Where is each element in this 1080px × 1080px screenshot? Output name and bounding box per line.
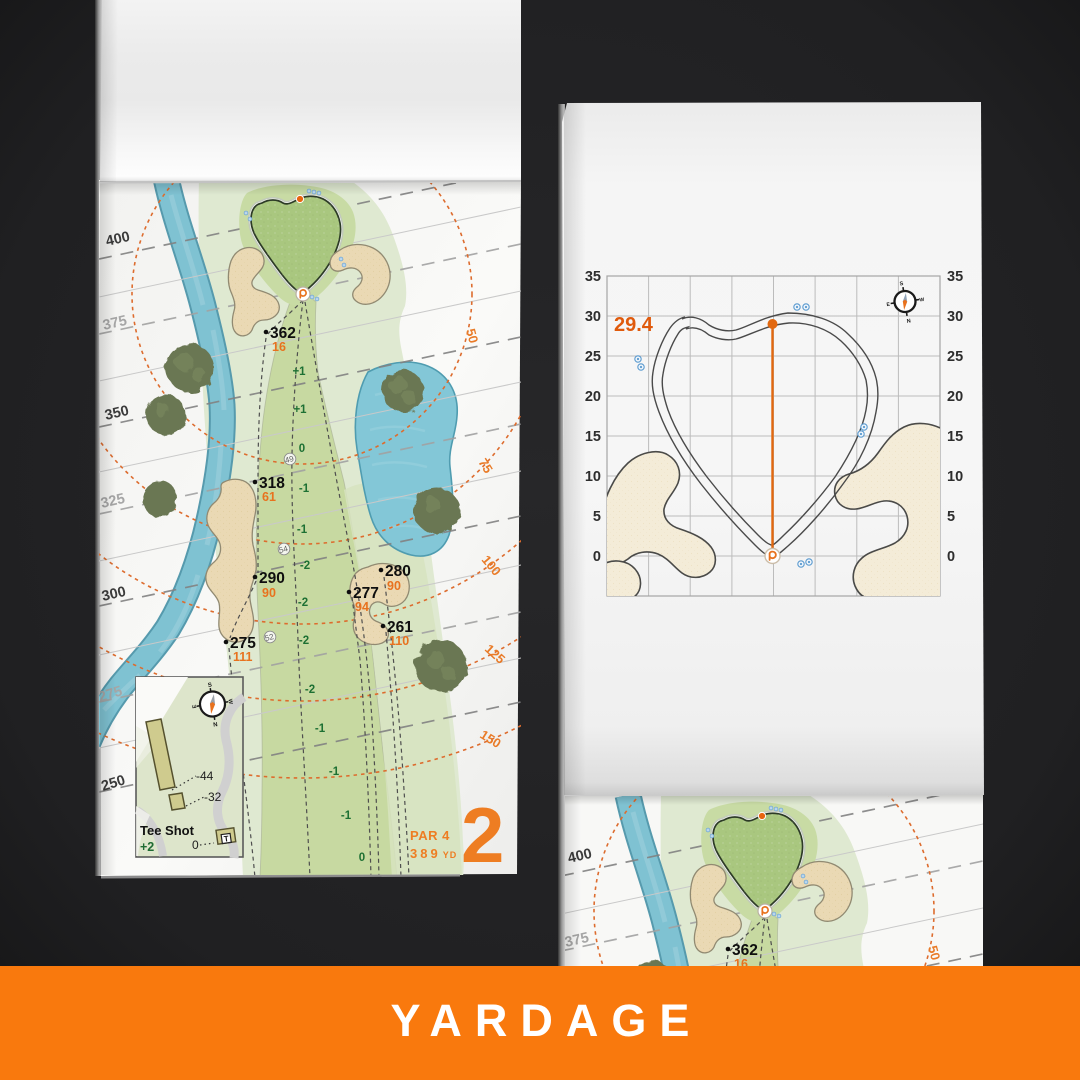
svg-text:25: 25: [947, 349, 963, 365]
svg-text:10: 10: [585, 469, 601, 485]
svg-text:25: 25: [585, 349, 601, 365]
svg-text:35: 35: [585, 269, 601, 285]
svg-text:N: N: [906, 318, 911, 324]
svg-text:0: 0: [593, 549, 601, 565]
svg-text:29.4: 29.4: [614, 314, 654, 336]
svg-text:15: 15: [585, 429, 601, 445]
svg-text:5: 5: [947, 509, 955, 525]
svg-text:15: 15: [947, 429, 963, 445]
svg-text:35: 35: [947, 269, 963, 285]
svg-text:20: 20: [585, 389, 601, 405]
svg-text:10: 10: [947, 469, 963, 485]
svg-text:30: 30: [585, 309, 601, 325]
svg-text:20: 20: [947, 389, 963, 405]
svg-text:5: 5: [593, 509, 601, 525]
svg-text:YARDAGE: YARDAGE: [391, 995, 703, 1046]
svg-text:0: 0: [947, 549, 955, 565]
svg-text:30: 30: [947, 309, 963, 325]
